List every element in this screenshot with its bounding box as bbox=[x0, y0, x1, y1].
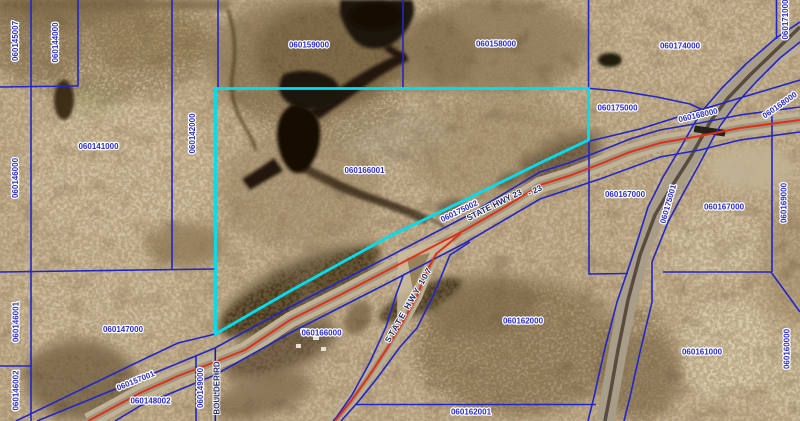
svg-text:060160000: 060160000 bbox=[782, 328, 791, 369]
svg-text:060161000: 060161000 bbox=[682, 347, 723, 356]
svg-text:060158000: 060158000 bbox=[476, 39, 517, 48]
svg-text:060166000: 060166000 bbox=[301, 329, 342, 338]
svg-text:060174000: 060174000 bbox=[660, 41, 701, 50]
svg-text:060162000: 060162000 bbox=[503, 316, 544, 325]
svg-text:060175000: 060175000 bbox=[597, 103, 638, 112]
svg-text:060159000: 060159000 bbox=[289, 40, 330, 49]
svg-text:060167000: 060167000 bbox=[704, 202, 745, 211]
svg-text:060149000: 060149000 bbox=[196, 367, 205, 408]
svg-text:060148002: 060148002 bbox=[130, 397, 171, 406]
svg-text:060145007: 060145007 bbox=[11, 20, 20, 61]
svg-text:060146002: 060146002 bbox=[12, 370, 21, 411]
svg-text:060146000: 060146000 bbox=[11, 157, 20, 198]
svg-text:060146001: 060146001 bbox=[11, 301, 20, 342]
svg-text:060162001: 060162001 bbox=[451, 407, 492, 416]
svg-text:BOULDER RD: BOULDER RD bbox=[213, 361, 222, 415]
svg-text:060167000: 060167000 bbox=[605, 190, 646, 199]
svg-text:060171000: 060171000 bbox=[781, 0, 790, 40]
svg-text:060144000: 060144000 bbox=[51, 22, 60, 63]
svg-text:060147000: 060147000 bbox=[103, 325, 144, 334]
svg-text:060169000: 060169000 bbox=[779, 182, 788, 223]
svg-text:060141000: 060141000 bbox=[78, 142, 119, 151]
svg-text:060166001: 060166001 bbox=[344, 166, 385, 175]
svg-text:060142000: 060142000 bbox=[188, 113, 197, 154]
